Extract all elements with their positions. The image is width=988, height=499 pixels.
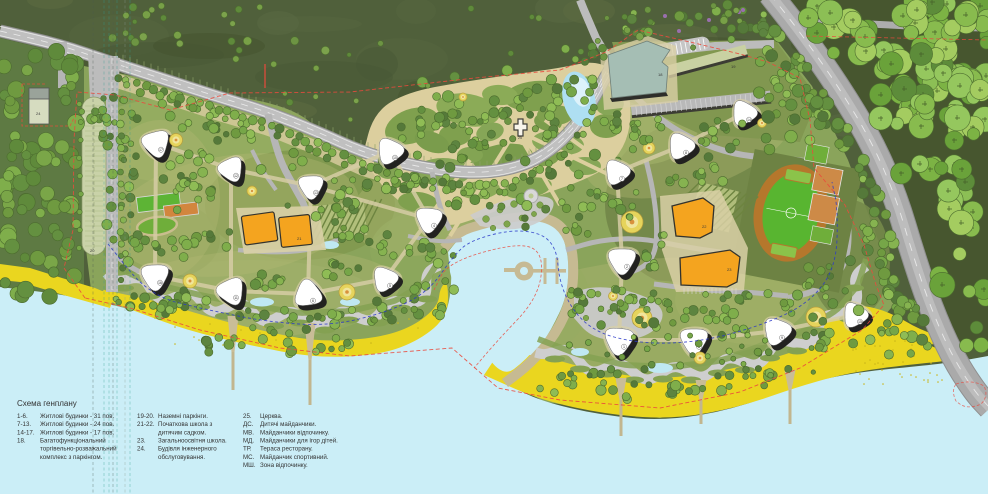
svg-text:9: 9 [781,336,783,340]
svg-text:Майданчики відпочинку.: Майданчики відпочинку. [260,429,329,436]
svg-text:Наземні паркінги.: Наземні паркінги. [158,413,208,420]
svg-text:23: 23 [727,267,732,272]
svg-text:13: 13 [314,191,318,195]
svg-text:11: 11 [234,296,238,300]
svg-text:Житлові будинки - 24 пов.: Житлові будинки - 24 пов. [40,421,114,428]
svg-text:21-22.: 21-22. [137,421,155,428]
svg-text:Схема генплану: Схема генплану [17,399,77,408]
svg-text:Майданчики для ігор дітей.: Майданчики для ігор дітей. [260,437,338,444]
svg-text:21: 21 [297,236,302,241]
svg-text:торгівельно-розважальний: торгівельно-розважальний [40,446,117,453]
svg-text:20: 20 [90,248,95,253]
svg-text:14-17.: 14-17. [17,429,35,436]
svg-text:МД.: МД. [243,437,254,444]
svg-text:15: 15 [858,320,862,324]
svg-text:25.: 25. [243,413,252,420]
svg-text:МС.: МС. [243,454,255,461]
svg-text:17: 17 [159,148,163,152]
svg-text:24.: 24. [137,446,146,453]
svg-text:дитячим садком.: дитячим садком. [158,429,207,436]
svg-text:16: 16 [158,281,162,285]
svg-text:ДС.: ДС. [243,421,254,428]
svg-text:1-6.: 1-6. [17,413,28,420]
svg-text:6: 6 [312,299,314,303]
svg-text:Тераса ресторану.: Тераса ресторану. [260,446,313,453]
svg-text:7-13.: 7-13. [17,421,31,428]
svg-text:1: 1 [623,345,625,349]
svg-text:МШ.: МШ. [243,462,256,469]
svg-text:24: 24 [36,111,41,116]
svg-text:8: 8 [685,151,687,155]
svg-text:Зона відпочинку.: Зона відпочинку. [260,462,308,469]
svg-text:14: 14 [747,118,751,122]
svg-text:Майданчик спортивний.: Майданчик спортивний. [260,454,329,461]
svg-text:Церква.: Церква. [260,413,283,420]
svg-text:комплекс з паркінгом.: комплекс з паркінгом. [40,454,103,461]
svg-text:Житлові будинки - 17 пов.: Житлові будинки - 17 пов. [40,429,114,436]
svg-text:2: 2 [626,265,628,269]
svg-text:Будівля інженерного: Будівля інженерного [158,446,217,453]
svg-text:Багатофункціональний: Багатофункціональний [40,437,106,444]
svg-text:18.: 18. [17,437,26,444]
svg-text:Дитячі майданчики.: Дитячі майданчики. [260,421,317,428]
svg-text:5: 5 [389,284,391,288]
svg-text:10: 10 [393,156,397,160]
svg-text:МВ.: МВ. [243,429,254,436]
svg-text:19-20.: 19-20. [137,413,155,420]
svg-text:12: 12 [234,174,238,178]
svg-text:7: 7 [621,177,623,181]
svg-text:23.: 23. [137,437,146,444]
svg-text:18: 18 [658,72,663,77]
svg-text:19: 19 [731,64,736,69]
svg-text:Початкова школа з: Початкова школа з [158,421,213,428]
svg-text:обслуговування.: обслуговування. [158,454,205,461]
svg-text:Загальноосвітня школа.: Загальноосвітня школа. [158,437,227,444]
svg-text:25: 25 [518,136,522,140]
svg-text:22: 22 [702,224,707,229]
svg-text:Житлові будинки - 31 пов.: Житлові будинки - 31 пов. [40,413,114,420]
svg-text:4: 4 [433,224,435,228]
svg-text:ТР.: ТР. [243,446,252,453]
